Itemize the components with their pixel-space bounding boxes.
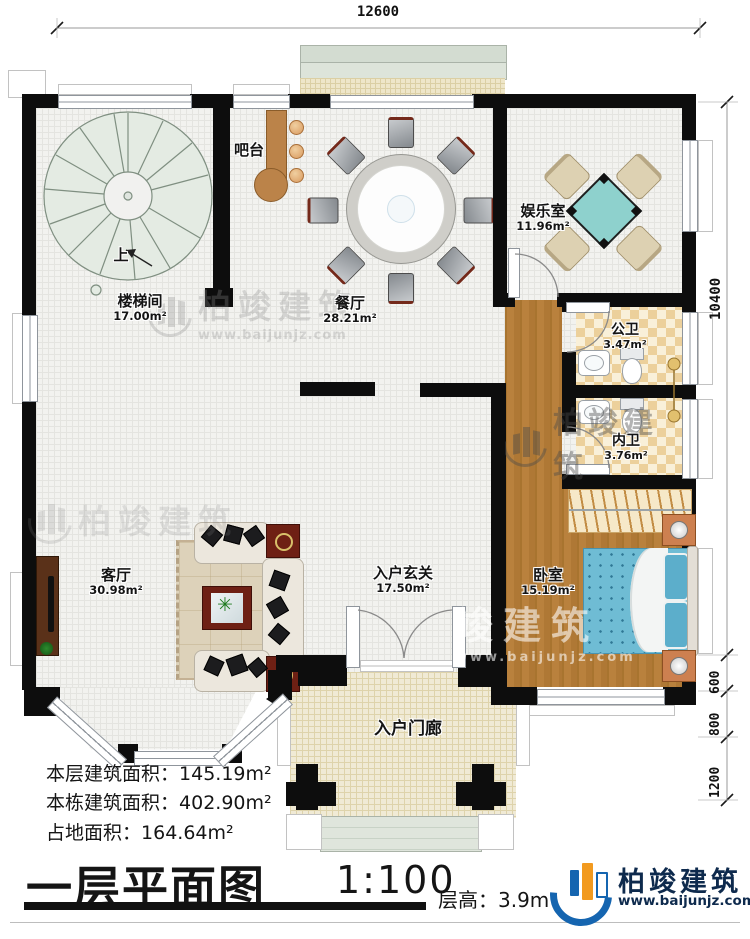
stat-total-area: 本栋建筑面积：402.90m² xyxy=(46,789,272,818)
sheet-bottom-rule xyxy=(10,922,740,923)
storey-height: 层高：3.9m xyxy=(438,884,549,913)
brand-site: www.baijunjz.com xyxy=(618,893,750,909)
brand-logo-icon xyxy=(550,856,612,916)
dim-top-width: 12600 xyxy=(333,4,423,20)
room-label-dining: 餐厅28.21m² xyxy=(323,295,376,325)
stats-block: 本层建筑面积：145.19m² 本栋建筑面积：402.90m² 占地面积：164… xyxy=(46,760,272,848)
stat-land-area: 占地面积：164.64m² xyxy=(46,819,272,848)
stair-direction-label: 上 xyxy=(113,247,128,264)
room-label-porch: 入户门廊 xyxy=(374,720,442,739)
stat-floor-area: 本层建筑面积：145.19m² xyxy=(46,760,272,789)
floor-plan-canvas: 12600 10400 600 800 1200 xyxy=(0,0,750,939)
dim-right-seg2: 800 xyxy=(708,700,723,736)
dim-right-seg3: 1200 xyxy=(708,748,723,798)
room-label-bedroom: 卧室15.19m² xyxy=(521,567,574,597)
title-underline xyxy=(24,902,426,910)
dim-right-height: 10400 xyxy=(708,256,724,320)
room-label-living: 客厅30.98m² xyxy=(89,567,142,597)
room-label-stairwell: 楼梯间17.00m² xyxy=(113,293,166,323)
room-label-public-bath: 公卫3.47m² xyxy=(603,323,646,351)
room-label-inner-bath: 内卫3.76m² xyxy=(604,434,647,462)
dim-right-seg1: 600 xyxy=(708,658,723,694)
room-label-bar: 吧台 xyxy=(234,142,264,159)
room-label-foyer: 入户玄关17.50m² xyxy=(373,565,433,595)
room-label-entertainment: 娱乐室11.96m² xyxy=(516,203,569,233)
